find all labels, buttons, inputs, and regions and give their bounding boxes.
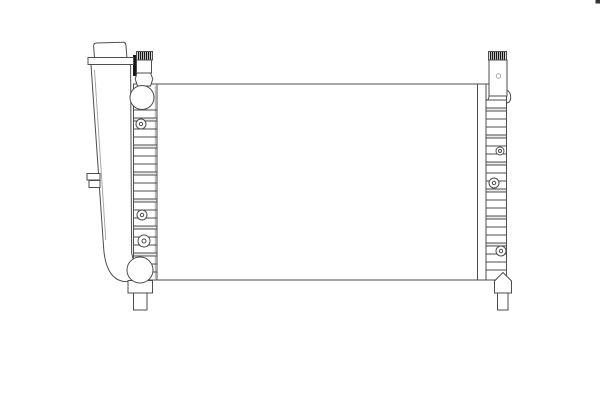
overflow-nipple-lower: [89, 181, 100, 188]
left-pin-stem: [134, 293, 148, 310]
left-bracket-body: [137, 60, 152, 73]
product-image: [0, 0, 600, 400]
right-tank: [486, 52, 512, 311]
overflow-nipple-upper: [87, 174, 100, 181]
expansion-tank: [87, 42, 138, 281]
radiator-technical-drawing: [0, 0, 600, 400]
right-pin-boss: [495, 273, 512, 294]
left-tank-outline: [134, 84, 158, 280]
tank-shading-line: [95, 70, 106, 240]
right-mounting-pin: [495, 273, 512, 311]
tank-left-edge: [91, 65, 104, 246]
left-bracket-teeth: [139, 52, 151, 60]
overflow-nipple: [87, 174, 100, 188]
right-pin-stem: [498, 293, 509, 310]
left-mounting-pin: [128, 281, 153, 311]
right-hole-1: [496, 147, 504, 155]
watermark-corner-mark: [596, 0, 600, 4]
inlet-port: [130, 86, 154, 110]
left-tank-segments: [134, 110, 157, 272]
core-outline: [157, 84, 486, 280]
filler-cap-flange: [88, 58, 134, 65]
outlet-port: [127, 257, 153, 283]
right-bracket-serration-outline: [489, 52, 507, 61]
radiator-core: [157, 84, 486, 280]
left-hole-1: [136, 119, 146, 129]
filler-neck-assembly: [133, 52, 153, 87]
left-hole-3: [138, 235, 150, 247]
outlet-elbow-outer: [104, 246, 129, 282]
left-hole-2: [137, 210, 147, 220]
right-hole-2: [489, 178, 499, 188]
right-top-bracket: [487, 52, 511, 104]
filler-neck-nut: [135, 73, 153, 86]
filler-cap: [94, 42, 127, 57]
right-hole-3: [496, 246, 506, 256]
right-bracket-teeth: [491, 52, 505, 60]
